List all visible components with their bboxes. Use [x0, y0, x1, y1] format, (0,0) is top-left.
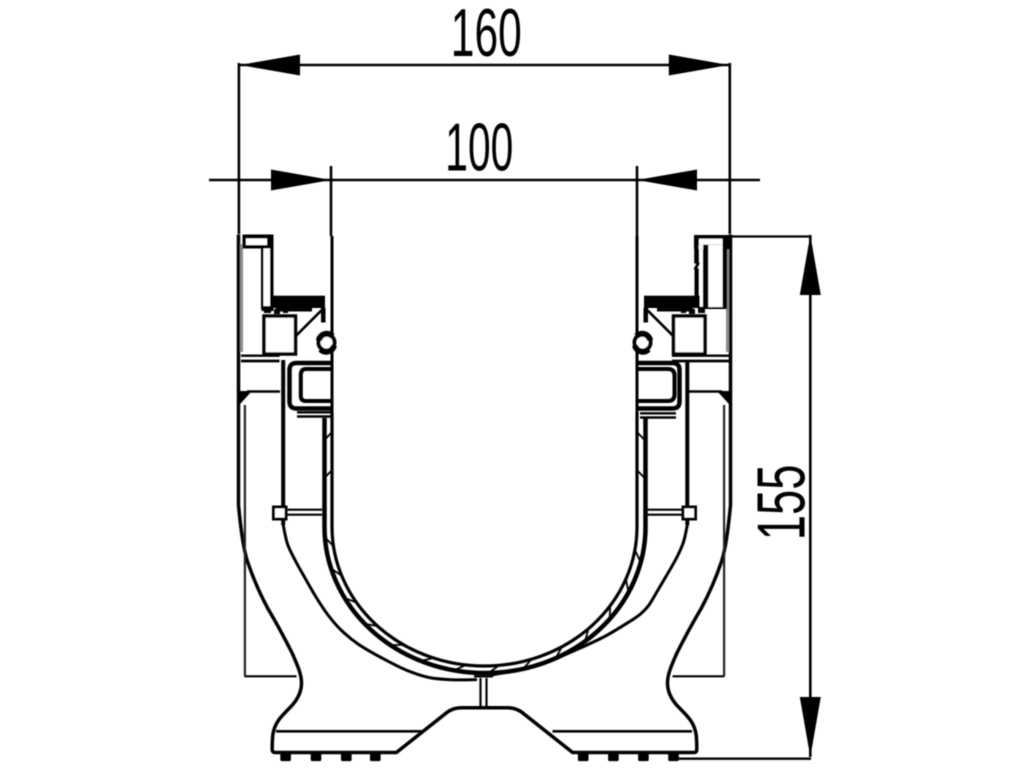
- svg-text:100: 100: [445, 109, 513, 185]
- svg-text:160: 160: [451, 0, 522, 71]
- svg-text:155: 155: [744, 465, 820, 541]
